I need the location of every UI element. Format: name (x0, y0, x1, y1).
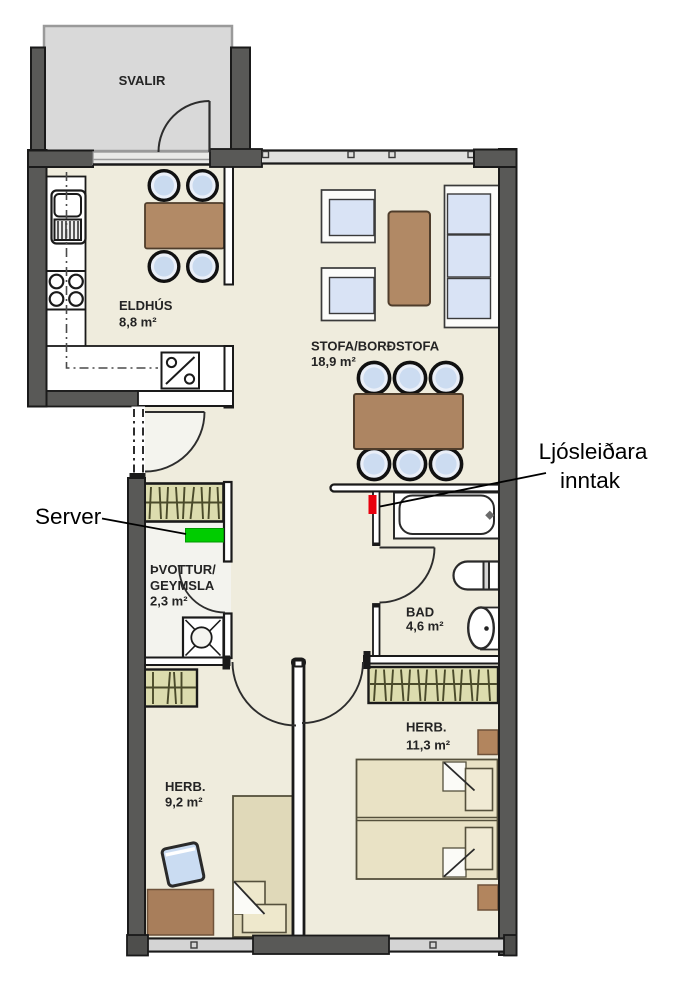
svg-text:9,2 m²: 9,2 m² (165, 795, 203, 810)
svg-text:Server: Server (35, 504, 102, 529)
svg-text:STOFA/BORÐSTOFA: STOFA/BORÐSTOFA (311, 339, 440, 354)
svg-text:2,3 m²: 2,3 m² (150, 594, 188, 609)
svg-text:SVALIR: SVALIR (119, 73, 166, 88)
svg-text:ELDHÚS: ELDHÚS (119, 298, 173, 313)
svg-text:GEYMSLA: GEYMSLA (150, 578, 215, 593)
svg-text:18,9 m²: 18,9 m² (311, 354, 356, 369)
svg-text:inntak: inntak (560, 468, 621, 493)
svg-text:ÞVOTTUR/: ÞVOTTUR/ (150, 562, 216, 577)
svg-text:11,3 m²: 11,3 m² (406, 738, 451, 753)
svg-text:Ljósleiðara: Ljósleiðara (539, 439, 648, 464)
svg-text:HERB.: HERB. (406, 720, 446, 735)
svg-text:8,8 m²: 8,8 m² (119, 315, 157, 330)
svg-text:4,6 m²: 4,6 m² (406, 619, 444, 634)
svg-text:HERB.: HERB. (165, 779, 205, 794)
svg-text:BAD: BAD (406, 605, 434, 620)
